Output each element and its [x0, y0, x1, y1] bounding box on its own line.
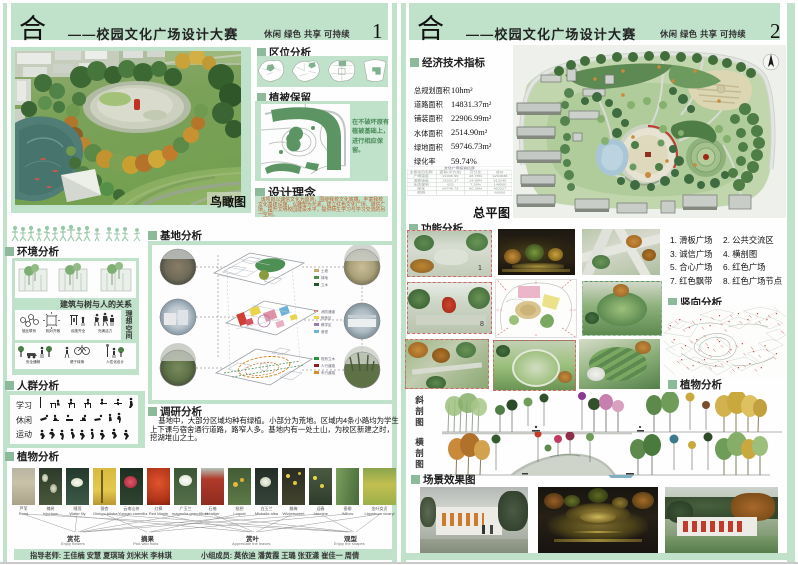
svg-text:教学区: 教学区	[321, 322, 332, 327]
svg-text:60.28%: 60.28%	[469, 187, 482, 190]
svg-text:消防通道: 消防通道	[321, 309, 335, 314]
svg-text:便于转换: 便于转换	[70, 359, 85, 364]
svg-text:453227: 453227	[493, 187, 506, 190]
svg-text:彼此联系: 彼此联系	[22, 328, 37, 333]
svg-text:水体规划: 水体规划	[413, 182, 428, 186]
svg-text:人性化设计: 人性化设计	[106, 359, 124, 364]
svg-text:613240: 613240	[493, 179, 506, 182]
svg-text:照明: 照明	[417, 191, 426, 194]
svg-text:148500: 148500	[493, 183, 506, 186]
svg-text:15331.37: 15331.37	[442, 179, 458, 182]
svg-text:21906.99: 21906.99	[442, 175, 458, 178]
svg-text:14.88%: 14.88%	[469, 179, 482, 182]
svg-text:主要项目名称: 主要项目名称	[410, 170, 434, 174]
svg-text:食堂: 食堂	[321, 329, 329, 334]
svg-text:道路铺装: 道路铺装	[413, 178, 429, 182]
svg-text:绿地: 绿地	[321, 275, 329, 280]
svg-text:人行道路: 人行道路	[321, 363, 335, 368]
svg-text:宿舍区: 宿舍区	[321, 315, 332, 320]
svg-text:安全通畅: 安全通畅	[26, 359, 41, 364]
svg-text:广场铺装: 广场铺装	[413, 174, 429, 178]
svg-text:面积(平方米): 面积(平方米)	[440, 170, 462, 174]
svg-text:相对开敞: 相对开敞	[46, 328, 61, 333]
svg-text:百分比: 百分比	[470, 170, 482, 174]
svg-text:充满活力: 充满活力	[98, 328, 113, 333]
svg-text:文化广场投资估算: 文化广场投资估算	[444, 166, 475, 170]
svg-text:立木: 立木	[321, 282, 329, 287]
svg-text:设施齐全: 设施齐全	[71, 328, 86, 333]
svg-text:绿化: 绿化	[417, 186, 426, 190]
svg-text:土坡: 土坡	[321, 268, 329, 273]
svg-text:车行道路: 车行道路	[321, 370, 335, 375]
svg-text:总价: 总价	[496, 170, 505, 174]
svg-text:64746.73: 64746.73	[442, 187, 458, 190]
svg-text:1294838: 1294838	[492, 175, 507, 178]
svg-text:825: 825	[447, 183, 454, 186]
svg-text:现有立木: 现有立木	[321, 356, 335, 361]
svg-text:28.78%: 28.78%	[469, 175, 482, 178]
svg-text:7.28%: 7.28%	[470, 183, 481, 186]
svg-text:60000: 60000	[495, 191, 506, 194]
